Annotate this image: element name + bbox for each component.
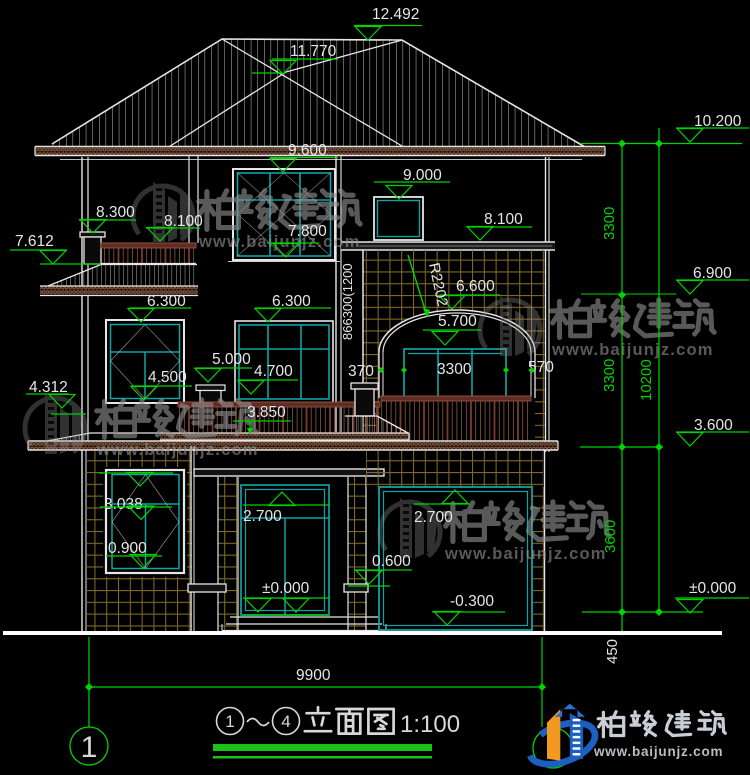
svg-text:2.700: 2.700 xyxy=(243,508,282,525)
svg-text:1: 1 xyxy=(81,731,98,764)
svg-text:2.700: 2.700 xyxy=(414,509,453,526)
svg-text:3300: 3300 xyxy=(437,361,472,378)
svg-text:4.700: 4.700 xyxy=(254,363,293,380)
svg-text:-0.300: -0.300 xyxy=(450,593,494,610)
svg-text:9.600: 9.600 xyxy=(288,142,327,159)
svg-text:3600: 3600 xyxy=(602,520,619,553)
svg-text:12.492: 12.492 xyxy=(372,6,419,23)
svg-text:8.100: 8.100 xyxy=(484,211,523,228)
svg-text:7.612: 7.612 xyxy=(15,233,54,250)
svg-text:8.300: 8.300 xyxy=(96,204,135,221)
svg-text:7.800: 7.800 xyxy=(288,223,327,240)
svg-text:3300: 3300 xyxy=(601,359,618,392)
svg-text:866300(1200: 866300(1200 xyxy=(340,263,355,340)
svg-text:www.baijunjz.com: www.baijunjz.com xyxy=(96,441,259,459)
svg-text:0.600: 0.600 xyxy=(372,553,411,570)
svg-text:www.baijunjz.com: www.baijunjz.com xyxy=(551,341,714,359)
svg-text:370: 370 xyxy=(348,363,374,380)
svg-text:www.baijunjz.com: www.baijunjz.com xyxy=(593,744,723,759)
svg-text:1:100: 1:100 xyxy=(400,711,460,738)
svg-text:www.baijunjz.com: www.baijunjz.com xyxy=(198,233,361,251)
svg-text:3300: 3300 xyxy=(601,207,618,240)
svg-text:9900: 9900 xyxy=(296,667,331,684)
svg-text:www.baijunjz.com: www.baijunjz.com xyxy=(444,545,607,563)
svg-text:4.500: 4.500 xyxy=(148,369,187,386)
svg-text:1: 1 xyxy=(225,712,234,731)
svg-text:±0.000: ±0.000 xyxy=(262,580,310,597)
svg-text:±0.000: ±0.000 xyxy=(689,580,737,597)
svg-text:5.000: 5.000 xyxy=(212,351,251,368)
svg-text:3.038: 3.038 xyxy=(104,496,143,513)
svg-text:11.770: 11.770 xyxy=(290,43,337,60)
svg-text:5.700: 5.700 xyxy=(438,313,477,330)
svg-text:10200: 10200 xyxy=(638,359,655,401)
svg-text:450: 450 xyxy=(604,639,621,664)
svg-text:6.600: 6.600 xyxy=(456,278,495,295)
svg-text:4: 4 xyxy=(281,712,290,731)
svg-text:3.850: 3.850 xyxy=(247,404,286,421)
